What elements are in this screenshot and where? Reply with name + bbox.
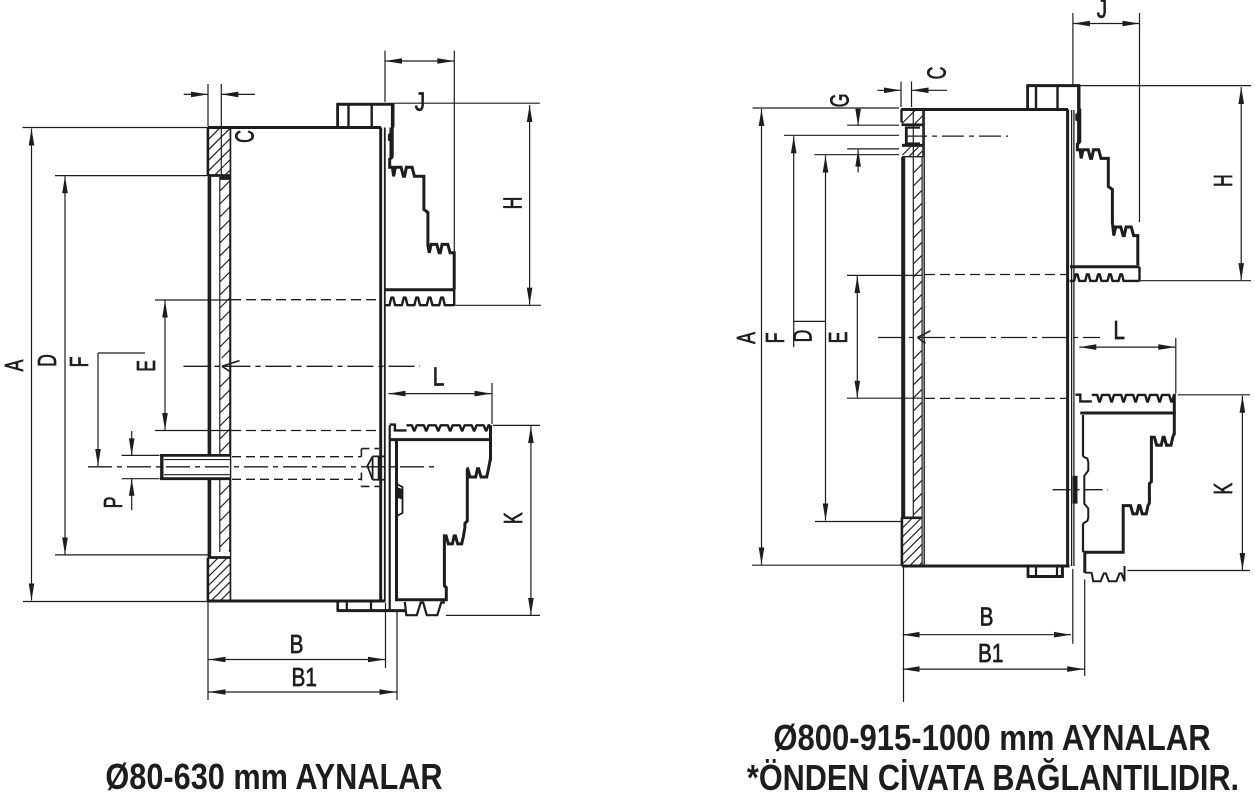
svg-text:G: G — [825, 94, 854, 108]
svg-text:L: L — [433, 362, 445, 391]
svg-text:K: K — [499, 512, 528, 524]
svg-text:H: H — [1208, 174, 1237, 187]
svg-text:D: D — [32, 354, 61, 367]
svg-text:A: A — [0, 359, 29, 371]
svg-text:B1: B1 — [291, 663, 316, 692]
svg-text:L: L — [1113, 316, 1125, 345]
svg-text:Ø800-915-1000 mm AYNALAR: Ø800-915-1000 mm AYNALAR — [773, 719, 1210, 759]
svg-text:F: F — [64, 357, 93, 368]
svg-text:F: F — [761, 333, 790, 344]
svg-text:*ÖNDEN CİVATA BAĞLANTILIDIR.: *ÖNDEN CİVATA BAĞLANTILIDIR. — [747, 758, 1239, 792]
svg-text:D: D — [788, 330, 817, 343]
svg-text:E: E — [132, 360, 161, 372]
svg-text:B: B — [980, 602, 994, 631]
svg-text:B: B — [290, 630, 304, 659]
svg-text:E: E — [823, 332, 852, 344]
svg-text:Ø80-630 mm AYNALAR: Ø80-630 mm AYNALAR — [105, 758, 442, 792]
svg-text:H: H — [498, 197, 527, 210]
svg-text:C: C — [230, 130, 259, 143]
svg-text:B1: B1 — [978, 639, 1003, 668]
svg-text:P: P — [98, 497, 127, 509]
svg-text:A: A — [731, 332, 760, 344]
svg-text:J: J — [1097, 0, 1107, 23]
svg-text:K: K — [1209, 483, 1238, 495]
svg-text:J: J — [415, 87, 425, 116]
svg-text:C: C — [922, 67, 951, 80]
